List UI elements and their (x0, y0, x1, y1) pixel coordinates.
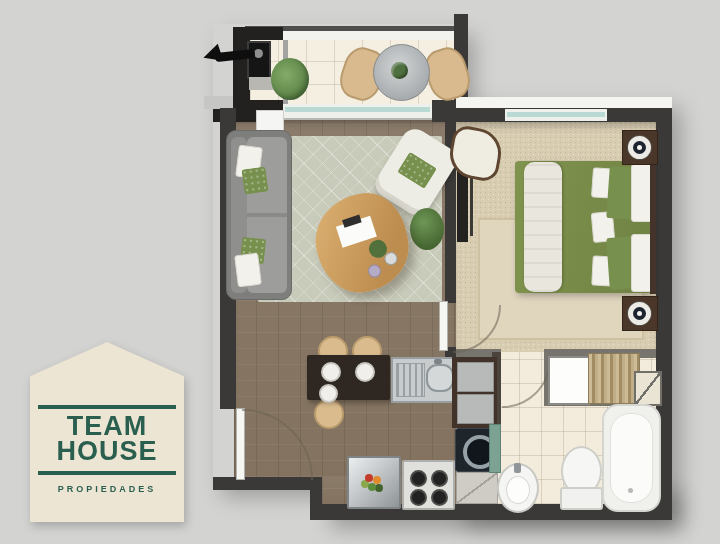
bath-shelf-rack (489, 424, 501, 473)
vestibule-wall-top (233, 27, 283, 40)
hall-cabinet (456, 472, 498, 504)
closet-shelf-box (548, 356, 590, 405)
place-setting-3 (319, 384, 338, 403)
logo-house-badge: TEAM HOUSE PROPIEDADES (30, 342, 184, 522)
kitchen-corner-counter (452, 357, 497, 428)
balcony-table-plant (391, 62, 408, 79)
dining-stool-3 (314, 399, 344, 429)
balcony-plant (271, 58, 309, 100)
burner-2 (431, 470, 448, 487)
place-setting-2 (355, 362, 375, 382)
burner-3 (410, 489, 427, 506)
bedroom-door-leaf (439, 301, 448, 351)
coffee-table-cup (384, 251, 399, 266)
burner-1 (410, 470, 427, 487)
refrigerator (347, 456, 401, 509)
water-heater-dial (254, 49, 263, 58)
lamp-top (628, 136, 651, 159)
bottom-step-wall (310, 477, 322, 520)
coffee-table-bowl (367, 264, 382, 279)
bedroom-window-glass (507, 112, 605, 117)
place-setting-1 (321, 362, 341, 382)
logo-rule-bottom (38, 471, 176, 475)
dish-rack (396, 363, 425, 397)
logo-title-line2: HOUSE (30, 439, 184, 464)
floorplan-canvas: { "logo": { "title_line1": "TEAM", "titl… (0, 0, 720, 544)
armchair-pillow (397, 152, 437, 189)
stove (402, 460, 455, 510)
teamhouse-logo: TEAM HOUSE PROPIEDADES (30, 342, 184, 522)
balcony-slider-door (283, 104, 432, 120)
sink-inner-bowl (506, 476, 530, 504)
bedroom-window (505, 109, 607, 121)
slider-glass (285, 107, 430, 112)
closet-hanging-clothes (588, 353, 640, 404)
lamp-bottom (628, 302, 651, 325)
sofa-pillow-white-bottom (234, 253, 262, 288)
water-heater (247, 41, 271, 79)
closet-corner-shelf (634, 371, 662, 406)
bathroom-sink-faucet (514, 463, 521, 473)
bed-foot-blanket (524, 162, 562, 292)
logo-subtitle: PROPIEDADES (30, 484, 184, 494)
nightstand-bottom (622, 296, 658, 331)
sofa-pillow-green-top (241, 166, 268, 194)
dining-bar-table (307, 355, 390, 400)
toilet-tank (560, 487, 603, 510)
cabinet-door-2 (457, 394, 494, 424)
logo-rule-top (38, 405, 176, 409)
bathtub-drain (628, 488, 633, 493)
entry-door-swing-arc (171, 409, 313, 544)
bedroom-top-ledge (456, 97, 672, 108)
bathroom-sink (497, 463, 539, 513)
living-plant (410, 208, 444, 250)
vegetable-tray (365, 474, 373, 482)
nightstand-top (622, 130, 658, 165)
cabinet-door-1 (457, 362, 494, 392)
bathtub (602, 404, 661, 512)
sink-bowl (426, 364, 454, 392)
bed-headboard (650, 160, 656, 294)
kitchen-sink-counter (391, 357, 457, 403)
sink-faucet (434, 359, 442, 364)
burner-4 (431, 489, 448, 506)
